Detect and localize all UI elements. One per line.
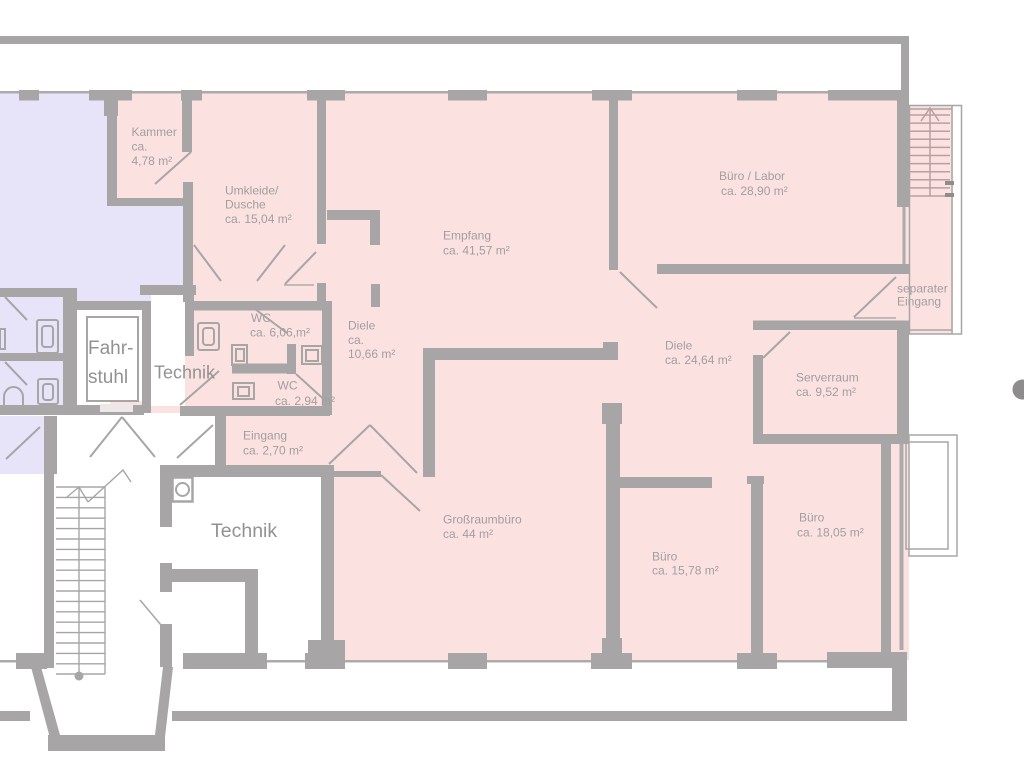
- svg-text:4,78 m²: 4,78 m²: [132, 154, 173, 168]
- svg-text:WC: WC: [278, 379, 298, 393]
- svg-text:ca. 24,64 m²: ca. 24,64 m²: [665, 353, 732, 367]
- svg-text:separater: separater: [897, 282, 948, 296]
- svg-text:Kammer: Kammer: [132, 125, 177, 139]
- svg-text:ca. 2,70 m²: ca. 2,70 m²: [243, 444, 303, 458]
- svg-text:Büro: Büro: [799, 511, 825, 525]
- svg-text:ca. 41,57 m²: ca. 41,57 m²: [443, 244, 510, 258]
- svg-text:Eingang: Eingang: [897, 295, 941, 309]
- svg-text:Diele: Diele: [348, 319, 376, 333]
- svg-text:Empfang: Empfang: [443, 229, 491, 243]
- svg-text:ca. 6,06,m²: ca. 6,06,m²: [250, 326, 310, 340]
- svg-text:ca.: ca.: [348, 333, 364, 347]
- svg-text:Dusche: Dusche: [225, 198, 266, 212]
- svg-text:ca. 44 m²: ca. 44 m²: [443, 527, 493, 541]
- svg-text:ca.: ca.: [132, 140, 148, 154]
- svg-text:ca. 28,90 m²: ca. 28,90 m²: [721, 184, 788, 198]
- svg-text:Serverraum: Serverraum: [796, 371, 859, 385]
- svg-text:ca. 15,78 m²: ca. 15,78 m²: [652, 564, 719, 578]
- svg-text:WC: WC: [251, 311, 271, 325]
- svg-text:Eingang: Eingang: [243, 429, 287, 443]
- svg-text:Büro / Labor: Büro / Labor: [719, 169, 785, 183]
- svg-text:ca. 18,05 m²: ca. 18,05 m²: [797, 526, 864, 540]
- svg-text:Diele: Diele: [665, 339, 693, 353]
- svg-text:ca. 15,04 m²: ca. 15,04 m²: [225, 212, 292, 226]
- svg-text:Fahr-: Fahr-: [88, 338, 133, 359]
- svg-text:stuhl: stuhl: [88, 367, 128, 388]
- svg-text:Technik: Technik: [154, 363, 216, 383]
- svg-text:Büro: Büro: [652, 550, 678, 564]
- svg-text:ca. 2,94 m²: ca. 2,94 m²: [275, 394, 335, 408]
- svg-text:Technik: Technik: [211, 520, 277, 542]
- svg-text:Umkleide/: Umkleide/: [225, 184, 279, 198]
- svg-text:ca. 9,52 m²: ca. 9,52 m²: [796, 385, 856, 399]
- svg-text:Großraumbüro: Großraumbüro: [443, 513, 522, 527]
- svg-text:10,66 m²: 10,66 m²: [348, 347, 395, 361]
